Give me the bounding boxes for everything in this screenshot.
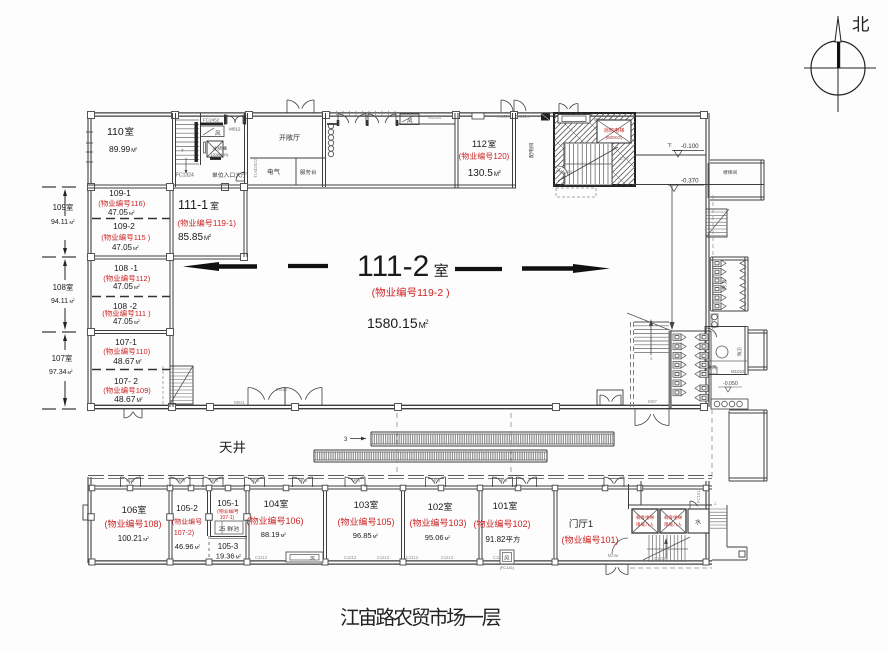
svg-text:2: 2 — [137, 245, 139, 249]
svg-text:2: 2 — [138, 319, 140, 323]
svg-text:25: 25 — [219, 527, 226, 533]
svg-text:C1212: C1212 — [344, 555, 357, 560]
svg-text:107-2): 107-2) — [174, 530, 194, 537]
svg-text:108: 108 — [53, 283, 67, 292]
svg-text:107-1): 107-1) — [220, 515, 235, 521]
svg-text:-0.370: -0.370 — [681, 178, 699, 185]
svg-text:C1212: C1212 — [255, 555, 268, 560]
svg-text:100.21: 100.21 — [118, 534, 143, 543]
svg-text:FC2452: FC2452 — [203, 118, 220, 123]
svg-text:107: 107 — [52, 354, 66, 363]
svg-text:105-2: 105-2 — [176, 503, 198, 513]
svg-text:M04: M04 — [210, 478, 219, 483]
svg-text:105): 105) — [376, 517, 394, 527]
svg-text:TLM2022: TLM2022 — [253, 158, 258, 178]
svg-text:112: 112 — [472, 139, 487, 150]
svg-text:2: 2 — [138, 284, 140, 288]
svg-text:-0.050: -0.050 — [723, 381, 738, 387]
svg-text:108 -1: 108 -1 — [114, 263, 138, 273]
svg-text:108 -2: 108 -2 — [113, 301, 137, 311]
svg-text:2: 2 — [135, 147, 137, 151]
svg-text:101: 101 — [493, 501, 509, 512]
svg-text:(: ( — [409, 518, 412, 528]
svg-text:111-2: 111-2 — [357, 250, 429, 283]
svg-text:108): 108) — [143, 519, 161, 529]
svg-text:M03: M03 — [126, 478, 135, 483]
svg-text:2: 2 — [284, 532, 286, 536]
svg-text:M05: M05 — [299, 478, 308, 483]
svg-text:85.85: 85.85 — [178, 232, 203, 243]
svg-text:112): 112) — [136, 274, 151, 283]
svg-text:1580.15: 1580.15 — [367, 315, 418, 331]
svg-text:109-1: 109-1 — [109, 188, 131, 198]
svg-text:102: 102 — [428, 502, 444, 513]
svg-text:88.19: 88.19 — [261, 530, 280, 539]
svg-text:119-2 ): 119-2 ) — [417, 287, 450, 299]
svg-text:95.06: 95.06 — [425, 533, 444, 542]
svg-text:M06: M06 — [499, 478, 508, 483]
svg-text:(: ( — [459, 152, 462, 161]
svg-text:(: ( — [372, 287, 376, 299]
svg-text:2: 2 — [71, 369, 73, 373]
svg-text:107- 2: 107- 2 — [114, 376, 138, 386]
svg-text:91.82: 91.82 — [485, 535, 506, 544]
svg-text:2: 2 — [239, 553, 241, 557]
svg-text:(: ( — [246, 516, 249, 526]
svg-text:109-2: 109-2 — [113, 221, 135, 231]
svg-text:M021: M021 — [234, 400, 246, 405]
svg-text:119-1): 119-1) — [213, 219, 236, 228]
svg-text:M012: M012 — [229, 127, 241, 132]
svg-text:2: 2 — [133, 210, 135, 214]
svg-text:C1212: C1212 — [377, 555, 390, 560]
svg-text:19.36: 19.36 — [216, 552, 235, 561]
svg-text:109: 109 — [53, 203, 67, 212]
svg-text:102): 102) — [512, 519, 530, 529]
svg-text:(800KG): (800KG) — [606, 135, 623, 140]
svg-text:1: 1 — [588, 519, 593, 530]
svg-text:116): 116) — [131, 199, 146, 208]
svg-text:2: 2 — [147, 536, 149, 540]
svg-text:(2000KG): (2000KG) — [211, 152, 229, 157]
svg-text:47.05: 47.05 — [108, 208, 129, 217]
svg-text:FM1224: FM1224 — [556, 169, 573, 174]
svg-text:-1.50: -1.50 — [618, 156, 629, 161]
svg-text:47.05: 47.05 — [113, 317, 134, 326]
svg-text:2: 2 — [139, 359, 141, 363]
svg-text:120): 120) — [493, 152, 509, 161]
svg-text:(: ( — [561, 535, 564, 545]
svg-text:M1024: M1024 — [428, 115, 442, 120]
svg-text:105-1: 105-1 — [217, 498, 239, 508]
svg-text:106: 106 — [122, 505, 138, 516]
svg-text:2: 2 — [73, 219, 75, 223]
svg-text:107-1: 107-1 — [115, 337, 137, 347]
svg-text:104: 104 — [264, 499, 280, 510]
svg-text:FC1324: FC1324 — [176, 173, 194, 179]
svg-text:-0.100: -0.100 — [681, 143, 699, 150]
svg-text:46.96: 46.96 — [175, 542, 194, 551]
svg-text:2: 2 — [140, 397, 142, 401]
svg-text:(: ( — [473, 519, 476, 529]
svg-text:M04: M04 — [177, 478, 186, 483]
svg-text:105-3: 105-3 — [218, 542, 239, 551]
svg-text:47.05: 47.05 — [112, 243, 133, 252]
svg-text:89.99: 89.99 — [109, 144, 131, 154]
svg-text:FC1512: FC1512 — [696, 487, 701, 503]
svg-text:C1220: C1220 — [654, 556, 667, 561]
svg-text:2: 2 — [425, 319, 429, 326]
svg-text:103): 103) — [448, 518, 466, 528]
svg-text:M07: M07 — [648, 399, 657, 404]
svg-text:M1024: M1024 — [497, 114, 511, 119]
svg-text:103: 103 — [354, 500, 370, 511]
svg-text:M05: M05 — [251, 478, 260, 483]
svg-text:C1212: C1212 — [406, 555, 419, 560]
svg-text:2: 2 — [376, 533, 378, 537]
svg-text:47.05: 47.05 — [113, 282, 134, 291]
svg-text:2: 2 — [448, 535, 450, 539]
svg-text:110): 110) — [136, 347, 151, 356]
svg-text:(: ( — [177, 219, 180, 228]
svg-text:110: 110 — [107, 126, 124, 138]
svg-text:(: ( — [104, 519, 107, 529]
svg-text:M05: M05 — [352, 478, 361, 483]
svg-text:(: ( — [337, 517, 340, 527]
svg-text:2: 2 — [198, 544, 200, 548]
svg-text:M1022: M1022 — [731, 369, 745, 374]
svg-text:130.5: 130.5 — [468, 168, 493, 179]
svg-text:111 ): 111 ) — [135, 309, 151, 318]
svg-text:M24a: M24a — [608, 553, 619, 558]
svg-text:106): 106) — [285, 516, 303, 526]
svg-text:111-1: 111-1 — [178, 198, 208, 212]
svg-text:(FC141): (FC141) — [500, 565, 515, 570]
svg-text:M06: M06 — [432, 478, 441, 483]
svg-text:94.11: 94.11 — [51, 298, 68, 305]
svg-text:2: 2 — [73, 298, 75, 302]
svg-text:96.85: 96.85 — [353, 531, 372, 540]
svg-text:M1024: M1024 — [516, 114, 530, 119]
svg-text:115 ): 115 ) — [134, 233, 151, 242]
svg-text:C1212: C1212 — [441, 555, 454, 560]
svg-text:97.34: 97.34 — [49, 369, 67, 376]
svg-text:94.11: 94.11 — [51, 219, 68, 226]
svg-text:48.67: 48.67 — [113, 356, 135, 366]
svg-text:109): 109) — [136, 386, 152, 395]
svg-text:48.67: 48.67 — [114, 394, 136, 404]
